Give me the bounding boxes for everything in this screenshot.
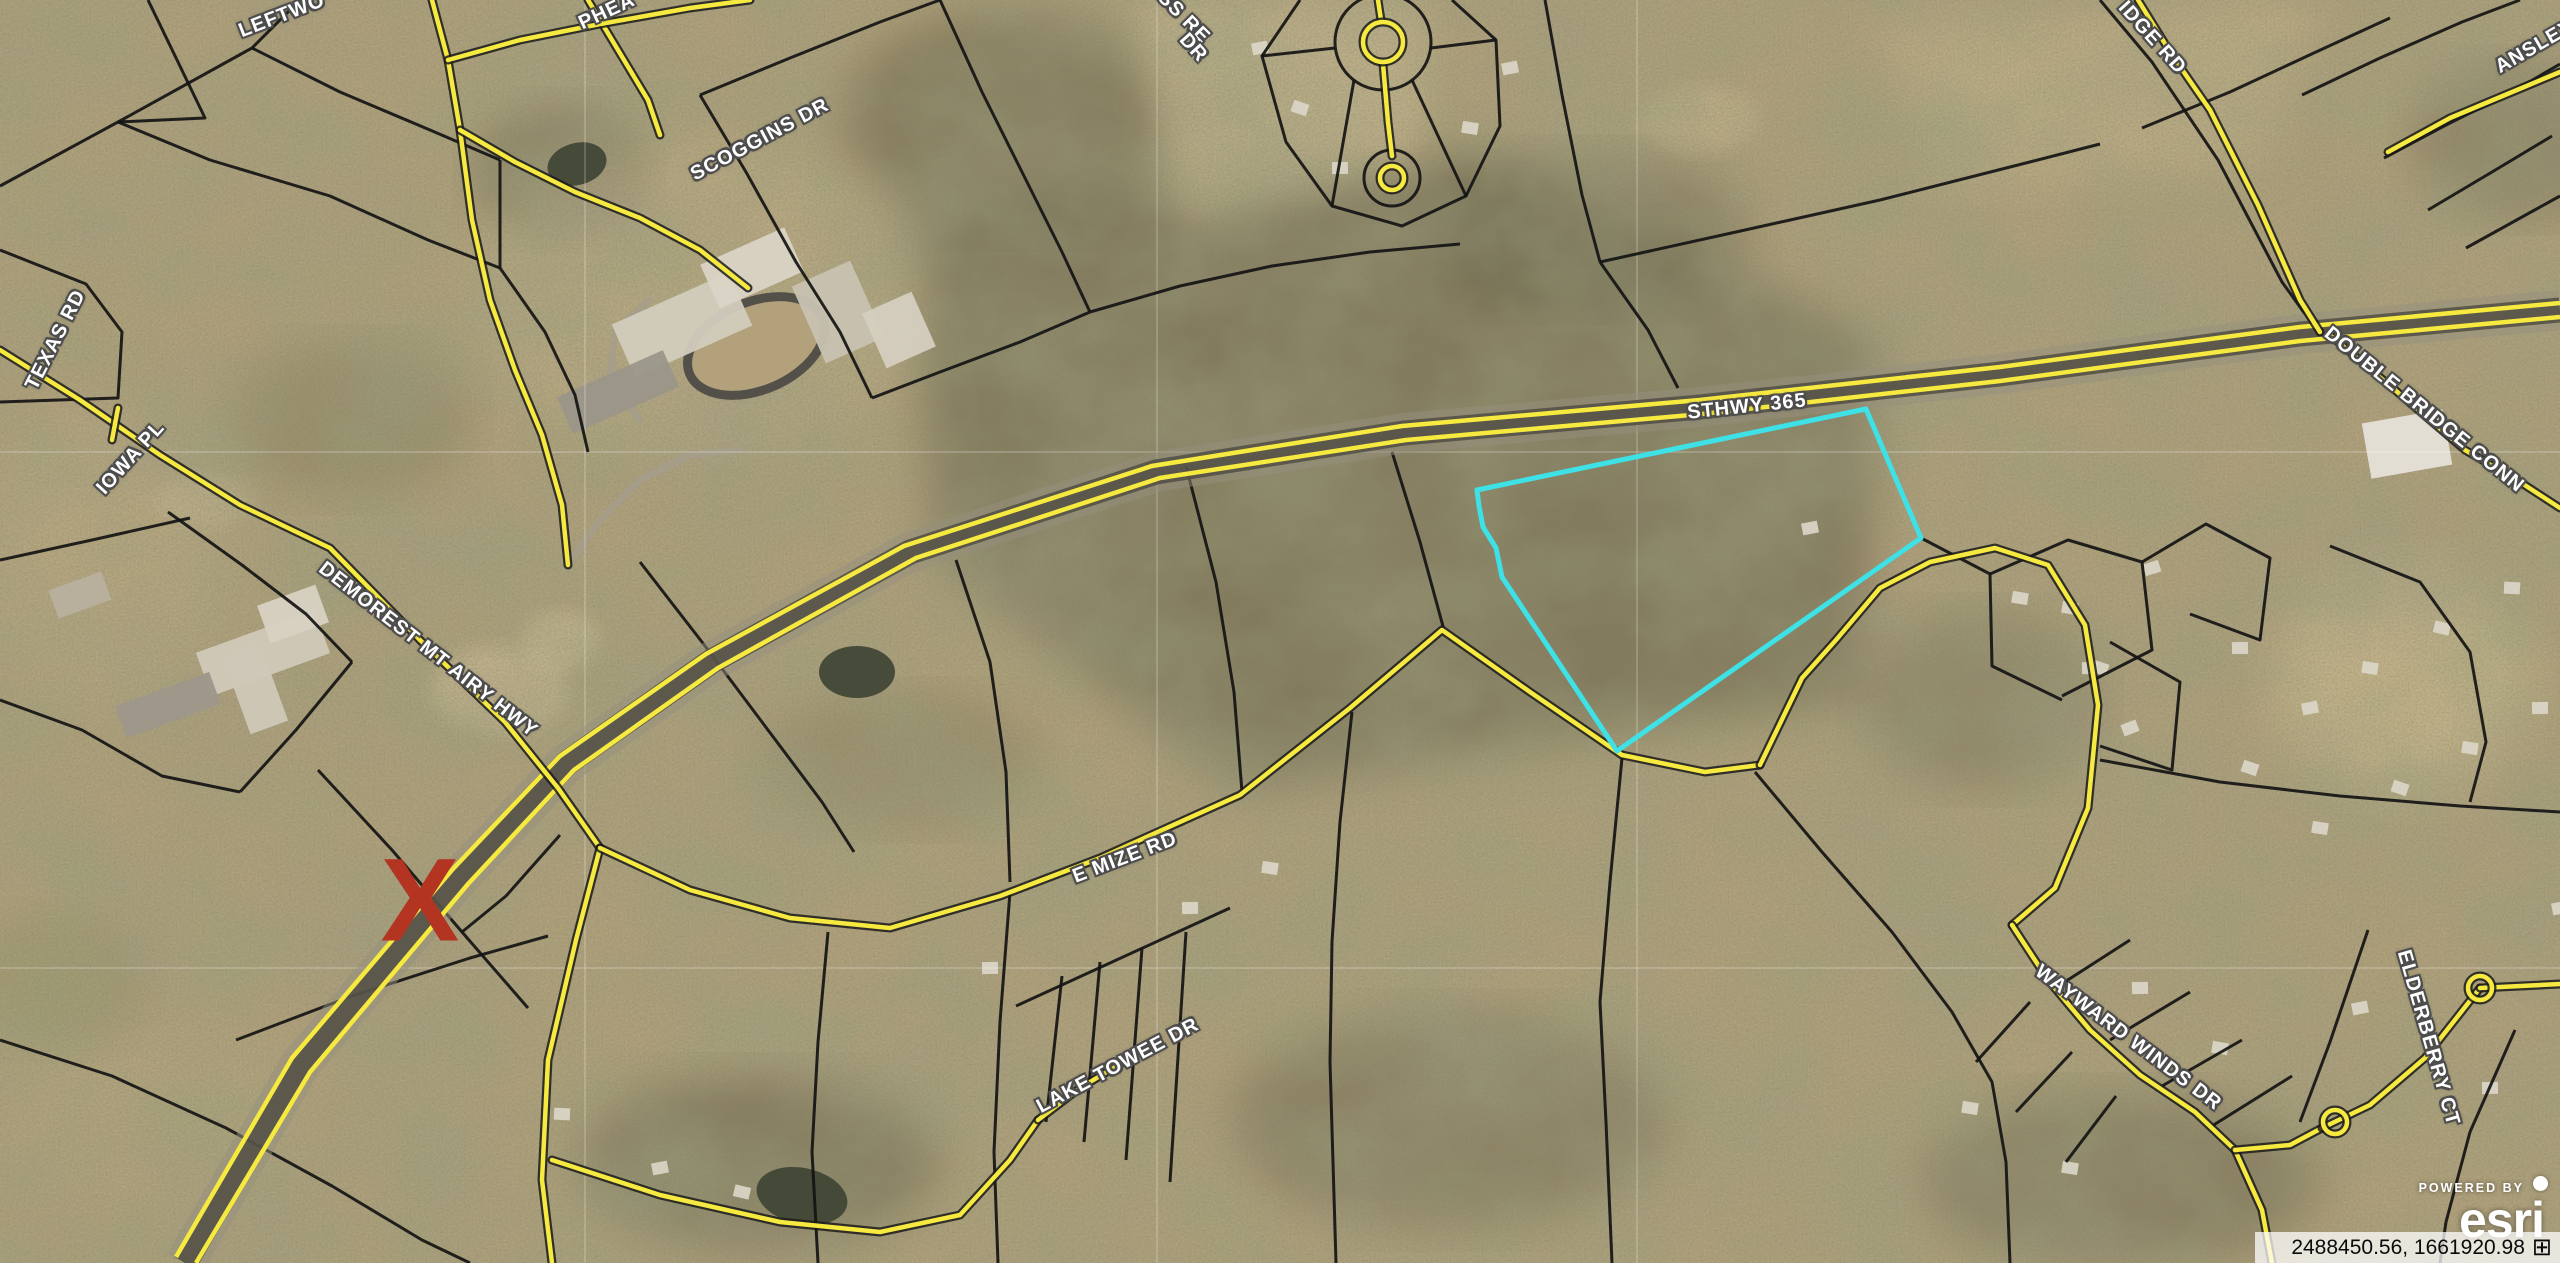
house [2504, 582, 2521, 595]
house [1461, 121, 1479, 135]
house [1261, 861, 1279, 875]
house [1961, 1101, 1979, 1115]
house [1182, 902, 1198, 914]
terrain-layer [0, 0, 2560, 1263]
house [2011, 591, 2029, 605]
house [2061, 1161, 2079, 1175]
house [2461, 741, 2479, 755]
house [2361, 661, 2379, 675]
coordinate-readout: 2488450.56, 1661920.98 [2291, 1236, 2525, 1260]
zoom-extent-icon[interactable]: ⊞ [2532, 1236, 2552, 1260]
house [554, 1108, 571, 1121]
map-canvas[interactable]: LEFTWOTEXAS RDIOWA PLSCOGGINS DRPHEAASS … [0, 0, 2560, 1263]
house [2311, 821, 2329, 835]
road-centerline [1378, 0, 1381, 20]
aerial-map [0, 0, 2560, 1263]
pond [819, 646, 895, 698]
house [2232, 642, 2248, 654]
house [2132, 982, 2148, 994]
house [2532, 702, 2548, 714]
coordinate-bar: 2488450.56, 1661920.98 ⊞ [2255, 1232, 2560, 1263]
terrain-grain [0, 0, 2560, 1263]
